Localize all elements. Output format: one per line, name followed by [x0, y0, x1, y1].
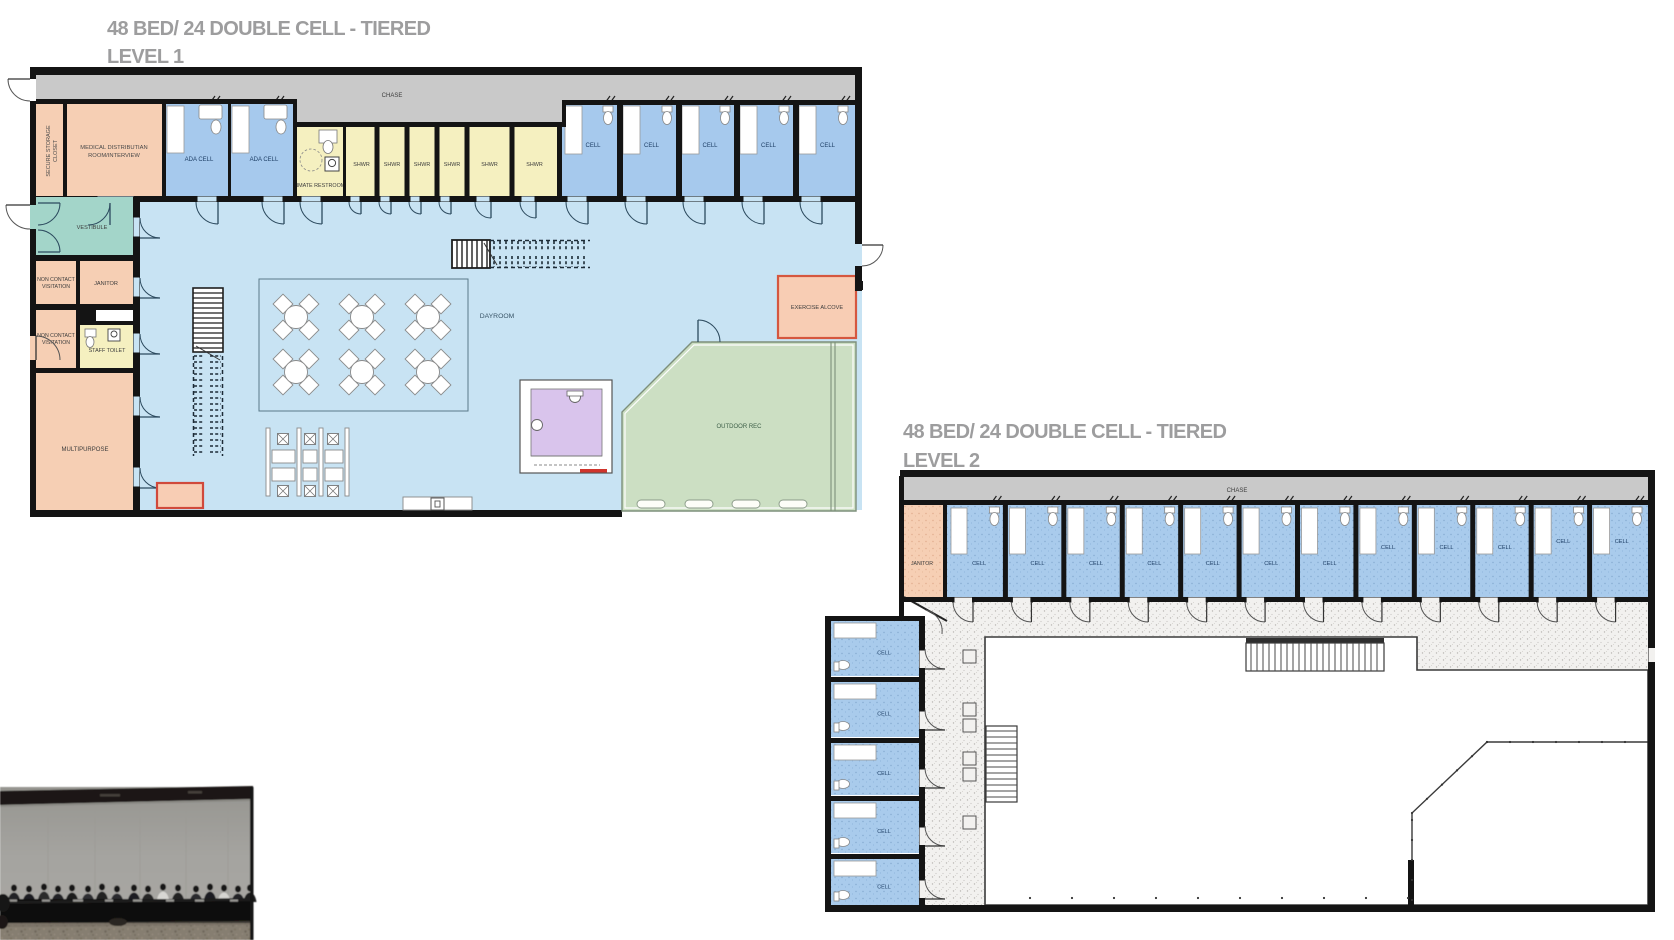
svg-text:CELL: CELL — [877, 651, 891, 657]
svg-text:DAYROOM: DAYROOM — [480, 313, 515, 320]
svg-text:CELL: CELL — [877, 771, 891, 777]
svg-text:CELL: CELL — [1323, 561, 1337, 567]
svg-text:MULTIPURPOSE: MULTIPURPOSE — [62, 447, 109, 453]
svg-text:EXERCISE ALCOVE: EXERCISE ALCOVE — [791, 305, 843, 311]
svg-text:48 BED/ 24 DOUBLE CELL - TIERE: 48 BED/ 24 DOUBLE CELL - TIERED — [107, 18, 430, 40]
svg-text:MEDICAL DISTRIBUTIAN: MEDICAL DISTRIBUTIAN — [80, 145, 147, 151]
svg-text:CELL: CELL — [877, 885, 891, 891]
svg-text:CELL: CELL — [1615, 539, 1629, 545]
svg-text:CELL: CELL — [1089, 561, 1103, 567]
svg-text:CELL: CELL — [644, 143, 660, 149]
svg-text:OUTDOOR REC: OUTDOOR REC — [717, 424, 763, 430]
svg-text:CELL: CELL — [1556, 539, 1570, 545]
svg-text:ROOM/INTERVIEW: ROOM/INTERVIEW — [88, 153, 140, 159]
svg-text:CELL: CELL — [1439, 545, 1453, 551]
svg-text:CELL: CELL — [877, 829, 891, 835]
svg-text:ADA CELL: ADA CELL — [185, 157, 214, 163]
svg-text:VISITATION: VISITATION — [42, 340, 70, 346]
svg-text:NON CONTACT: NON CONTACT — [37, 277, 75, 283]
svg-text:SHWR: SHWR — [353, 162, 370, 168]
svg-text:CELL: CELL — [1381, 545, 1395, 551]
svg-text:CELL: CELL — [1498, 545, 1512, 551]
svg-text:CELL: CELL — [820, 143, 836, 149]
svg-text:JANITOR: JANITOR — [94, 281, 118, 287]
svg-text:CELL: CELL — [761, 143, 777, 149]
svg-text:SHWR: SHWR — [481, 162, 498, 168]
svg-text:CELL: CELL — [1147, 561, 1161, 567]
svg-text:CHASE: CHASE — [382, 93, 403, 99]
svg-text:SHWR: SHWR — [384, 162, 401, 168]
svg-text:SHWR: SHWR — [444, 162, 461, 168]
svg-text:SHWR: SHWR — [414, 162, 431, 168]
svg-text:VESTIBULE: VESTIBULE — [77, 225, 108, 231]
svg-text:ADA CELL: ADA CELL — [250, 157, 279, 163]
svg-text:LEVEL 2: LEVEL 2 — [903, 450, 980, 472]
svg-text:INMATE RESTROOM: INMATE RESTROOM — [293, 183, 346, 189]
svg-text:SECURE STORAGE: SECURE STORAGE — [46, 125, 52, 177]
svg-text:CELL: CELL — [1031, 561, 1045, 567]
svg-text:48 BED/ 24 DOUBLE CELL - TIERE: 48 BED/ 24 DOUBLE CELL - TIERED — [903, 421, 1226, 443]
svg-text:CELL: CELL — [585, 143, 601, 149]
svg-text:LEVEL 1: LEVEL 1 — [107, 46, 184, 68]
svg-text:VISITATION: VISITATION — [42, 284, 70, 290]
svg-text:CELL: CELL — [702, 143, 718, 149]
svg-text:CELL: CELL — [1264, 561, 1278, 567]
svg-text:CELL: CELL — [877, 712, 891, 718]
svg-text:SHWR: SHWR — [526, 162, 543, 168]
svg-text:NON CONTACT: NON CONTACT — [37, 333, 75, 339]
svg-text:CELL: CELL — [972, 561, 986, 567]
svg-text:CLOSET: CLOSET — [53, 139, 59, 162]
svg-text:STAFF TOILET: STAFF TOILET — [89, 348, 127, 354]
svg-text:CELL: CELL — [1206, 561, 1220, 567]
svg-text:CHASE: CHASE — [1227, 488, 1248, 494]
svg-text:JANITOR: JANITOR — [911, 561, 933, 567]
